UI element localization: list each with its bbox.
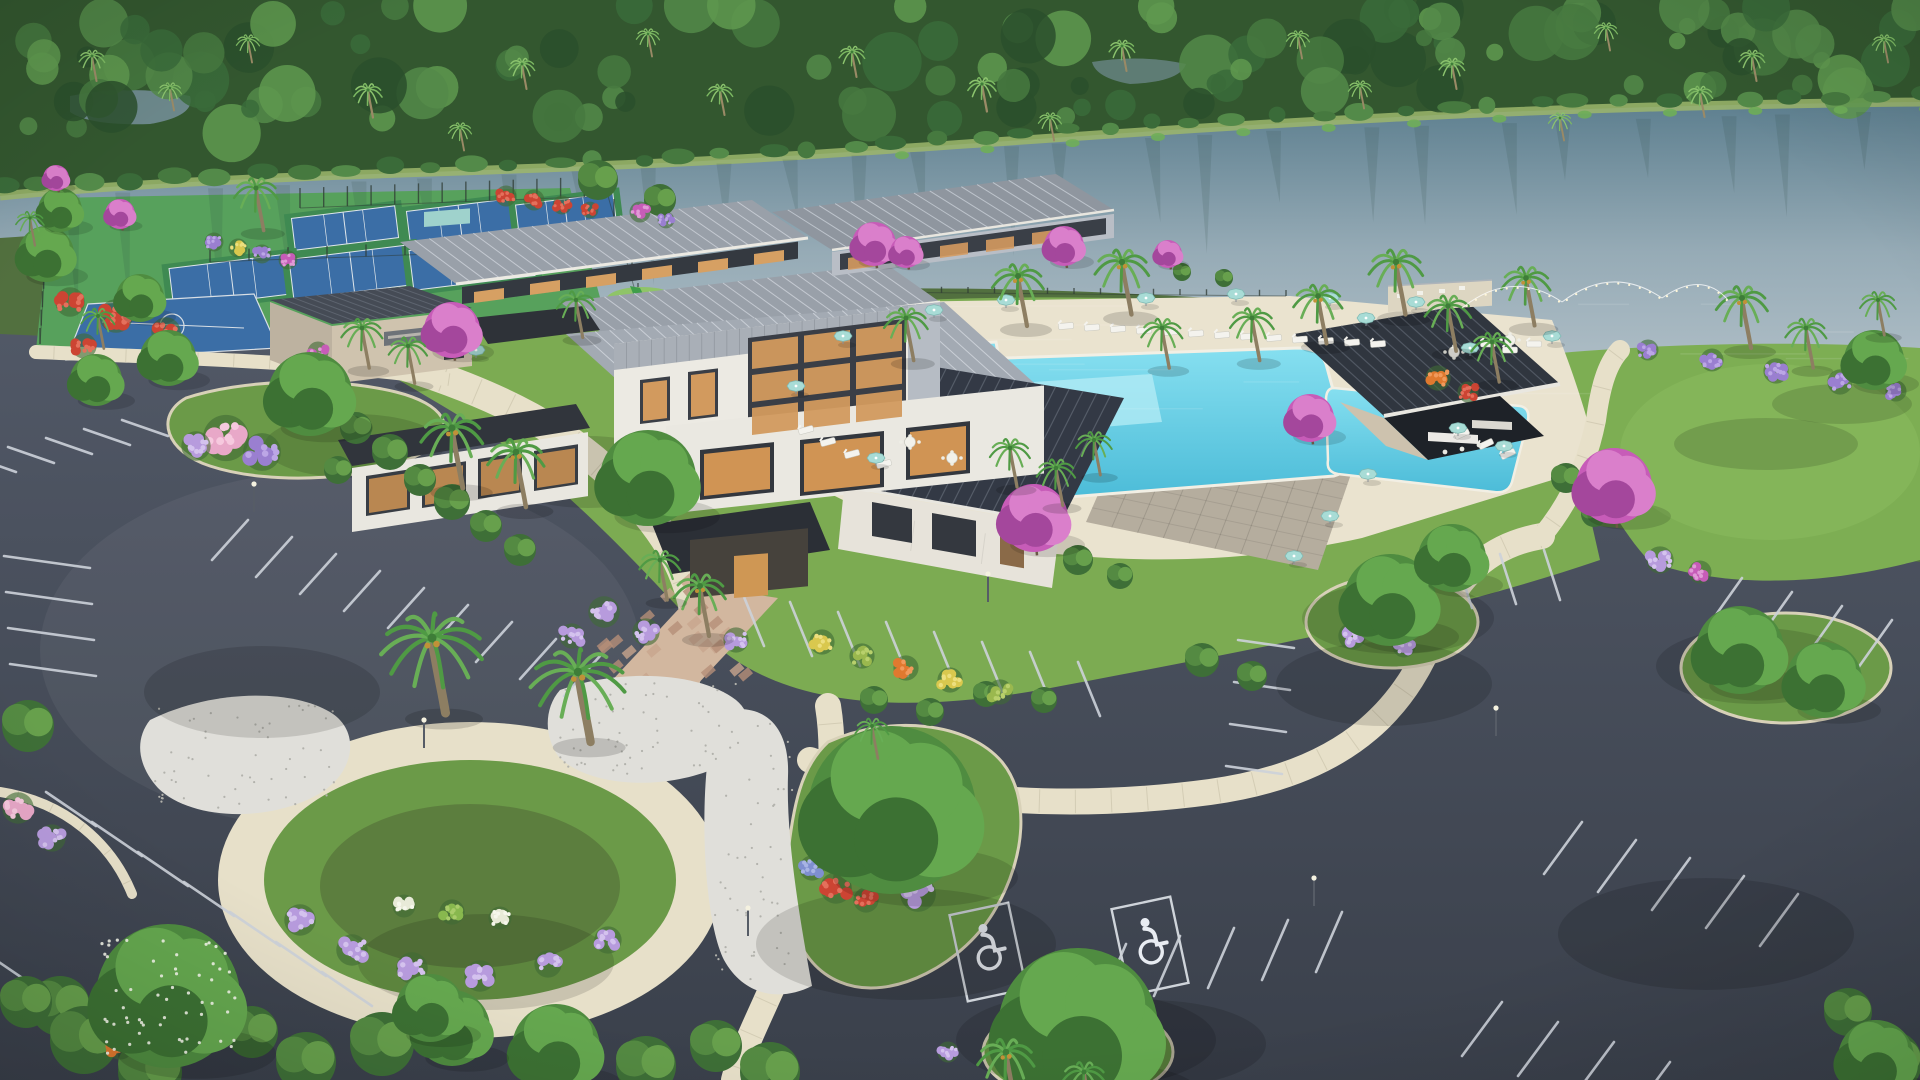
aerial-rendering: Aerial architectural rendering of a lake… <box>0 0 1920 1080</box>
rendering-canvas <box>0 0 1920 1080</box>
